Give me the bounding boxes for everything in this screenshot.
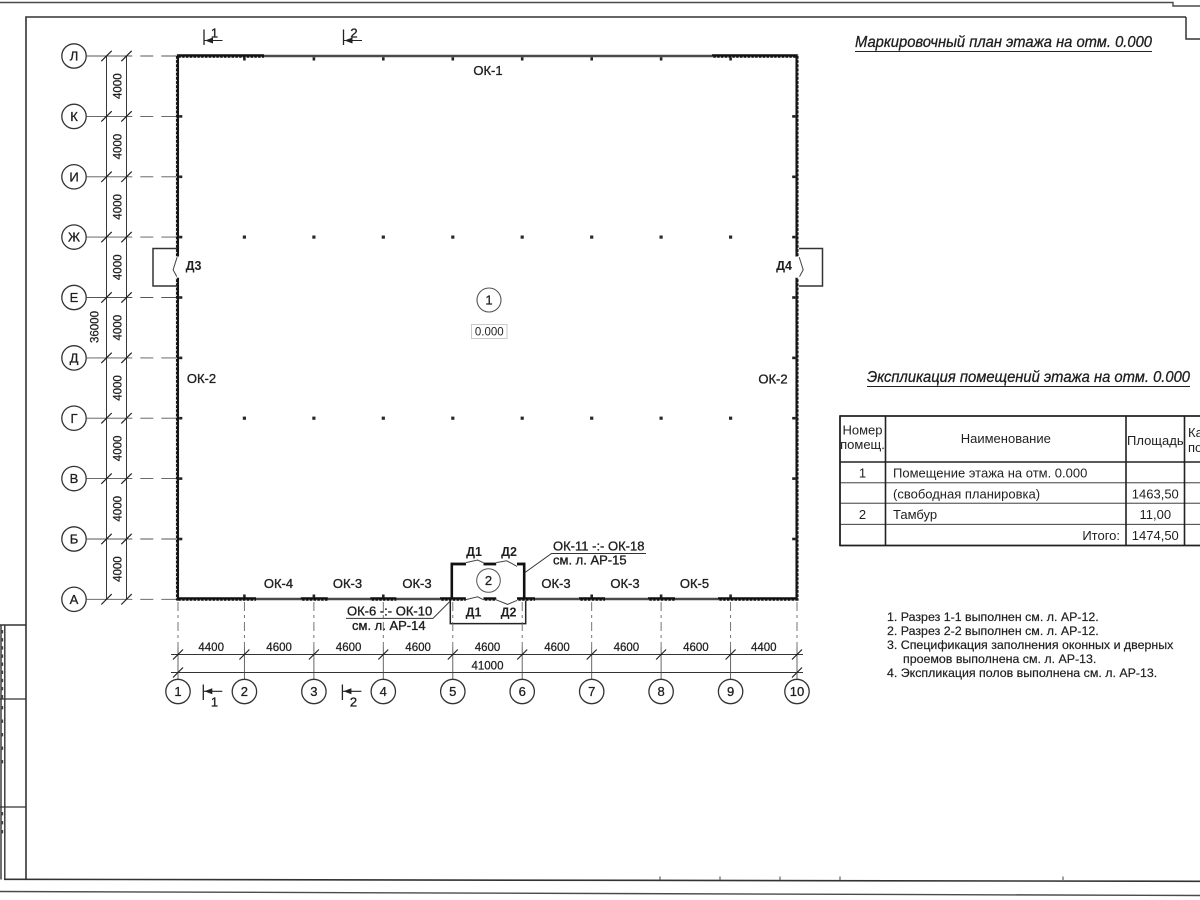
svg-text:1: 1	[211, 26, 218, 41]
svg-text:1: 1	[211, 695, 218, 710]
svg-text:4000: 4000	[113, 436, 125, 462]
svg-text:В: В	[70, 471, 79, 486]
svg-text:4600: 4600	[266, 642, 292, 654]
svg-text:Номер: Номер	[842, 423, 882, 438]
svg-text:Д2: Д2	[501, 545, 517, 559]
svg-text:4000: 4000	[113, 375, 125, 401]
svg-text:Д: Д	[70, 351, 79, 366]
svg-text:по: по	[1188, 440, 1200, 455]
svg-text:ОК-3: ОК-3	[610, 576, 639, 591]
svg-text:4400: 4400	[198, 642, 224, 654]
svg-text:1474,50: 1474,50	[1132, 528, 1179, 543]
svg-text:4000: 4000	[113, 134, 125, 160]
svg-text:0.000: 0.000	[475, 326, 504, 338]
svg-text:Маркировочный план этажа на от: Маркировочный план этажа на отм. 0.000	[855, 34, 1152, 51]
svg-text:Д2: Д2	[501, 605, 517, 619]
svg-text:8: 8	[657, 684, 664, 699]
svg-text:36000: 36000	[90, 311, 102, 343]
svg-text:4600: 4600	[614, 642, 640, 654]
svg-text:Л: Л	[70, 49, 79, 64]
svg-text:4000: 4000	[113, 556, 125, 582]
svg-text:1: 1	[859, 466, 866, 481]
svg-text:1463,50: 1463,50	[1132, 486, 1179, 501]
svg-text:ОК-11 -:- ОК-18: ОК-11 -:- ОК-18	[553, 539, 644, 554]
svg-text:И: И	[69, 169, 78, 184]
svg-text:Д4: Д4	[776, 259, 792, 273]
svg-text:2: 2	[241, 684, 248, 699]
svg-text:Экспликация помещений этажа на: Экспликация помещений этажа на отм. 0.00…	[867, 369, 1190, 386]
svg-text:Площадь: Площадь	[1127, 433, 1184, 448]
svg-text:5: 5	[449, 684, 456, 699]
svg-text:4000: 4000	[113, 73, 125, 99]
svg-text:Д1: Д1	[466, 545, 482, 559]
svg-text:ОК-2: ОК-2	[187, 371, 216, 386]
svg-text:1. Разрез 1-1 выполнен см. л.: 1. Разрез 1-1 выполнен см. л. АР-12.	[887, 610, 1099, 624]
svg-text:10: 10	[790, 684, 804, 699]
svg-text:4000: 4000	[113, 255, 125, 281]
svg-text:Итого:: Итого:	[1082, 528, 1120, 543]
svg-text:2: 2	[350, 26, 357, 41]
svg-text:см. л. АР-14: см. л. АР-14	[352, 618, 426, 633]
svg-text:Д3: Д3	[186, 259, 202, 273]
svg-text:4400: 4400	[751, 642, 777, 654]
svg-text:9: 9	[727, 684, 734, 699]
svg-text:4. Экспликация полов выполнена: 4. Экспликация полов выполнена см. л. АР…	[887, 666, 1157, 680]
svg-text:ОК-1: ОК-1	[473, 63, 502, 78]
svg-text:Ж: Ж	[68, 230, 80, 245]
svg-text:1: 1	[174, 684, 181, 699]
svg-text:2: 2	[485, 573, 492, 588]
svg-text:К: К	[70, 109, 78, 124]
svg-text:1: 1	[485, 293, 492, 308]
svg-text:4: 4	[380, 684, 387, 699]
svg-text:4000: 4000	[113, 194, 125, 220]
svg-text:ОК-3: ОК-3	[402, 576, 431, 591]
svg-text:ОК-3: ОК-3	[333, 576, 362, 591]
svg-text:Г: Г	[70, 411, 77, 426]
svg-text:Тамбур: Тамбур	[893, 507, 937, 522]
svg-text:3. Спецификация заполнения око: 3. Спецификация заполнения оконных и две…	[887, 638, 1174, 652]
svg-text:11,00: 11,00	[1140, 507, 1172, 522]
svg-text:4000: 4000	[113, 496, 125, 522]
svg-text:ОК-4: ОК-4	[264, 576, 293, 591]
svg-text:Ка: Ка	[1188, 425, 1200, 440]
svg-text:проемов выполнена см. л. АР-13: проемов выполнена см. л. АР-13.	[903, 652, 1096, 666]
svg-text:2: 2	[350, 695, 357, 710]
svg-text:2: 2	[859, 507, 866, 522]
svg-text:см. л. АР-15: см. л. АР-15	[553, 553, 627, 568]
svg-text:ОК-6 -:- ОК-10: ОК-6 -:- ОК-10	[347, 604, 432, 619]
svg-text:Б: Б	[70, 532, 79, 547]
svg-text:4600: 4600	[544, 642, 570, 654]
svg-text:Д1: Д1	[466, 605, 482, 619]
svg-text:Е: Е	[70, 290, 79, 305]
svg-text:помещ.: помещ.	[840, 437, 885, 452]
svg-text:4000: 4000	[113, 315, 125, 341]
svg-text:А: А	[70, 592, 79, 607]
svg-text:2. Разрез 2-2 выполнен см. л.: 2. Разрез 2-2 выполнен см. л. АР-12.	[887, 624, 1099, 638]
svg-text:(свободная планировка): (свободная планировка)	[893, 486, 1040, 501]
svg-text:4600: 4600	[336, 642, 362, 654]
svg-text:Наименование: Наименование	[961, 431, 1051, 446]
svg-text:ОК-2: ОК-2	[758, 372, 787, 387]
svg-text:Помещение этажа на отм. 0.000: Помещение этажа на отм. 0.000	[893, 466, 1087, 481]
svg-text:41000: 41000	[472, 660, 504, 672]
svg-text:4600: 4600	[405, 642, 431, 654]
svg-text:6: 6	[519, 684, 526, 699]
svg-text:ОК-3: ОК-3	[541, 576, 570, 591]
svg-text:ОК-5: ОК-5	[680, 576, 709, 591]
svg-text:7: 7	[588, 684, 595, 699]
svg-text:4600: 4600	[475, 642, 501, 654]
svg-text:4600: 4600	[683, 642, 709, 654]
svg-text:3: 3	[310, 684, 317, 699]
